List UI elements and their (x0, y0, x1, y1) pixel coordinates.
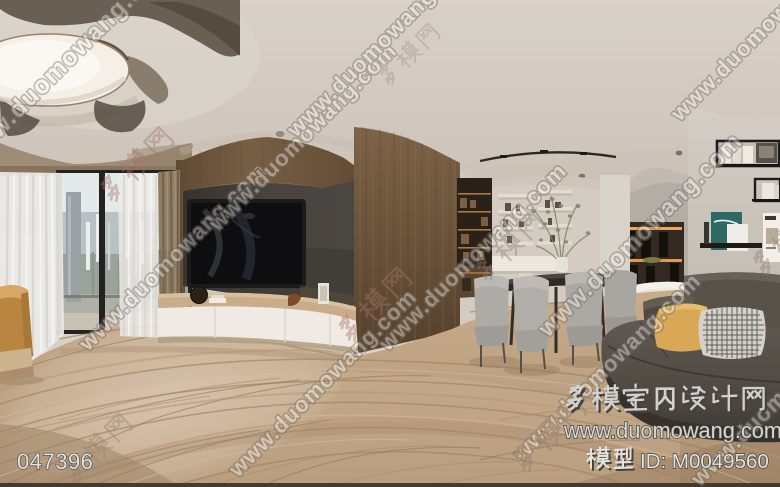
svg-text:www.duomowang.com: www.duomowang.com (563, 418, 780, 443)
svg-text:ID: M0049560: ID: M0049560 (640, 450, 769, 473)
svg-text:047396: 047396 (17, 449, 93, 474)
